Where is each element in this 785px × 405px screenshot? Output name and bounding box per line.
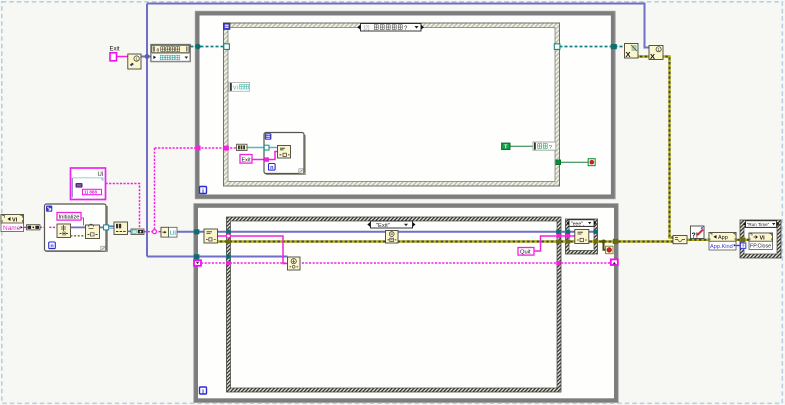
svg-text:1) 888: 1) 888 <box>84 190 97 195</box>
svg-text:Quit: Quit <box>520 250 531 256</box>
svg-text:i: i <box>202 188 204 195</box>
svg-text:App.Kind: App.Kind <box>710 244 733 250</box>
svg-text:UI: UI <box>98 172 104 178</box>
svg-text:VI: VI <box>12 218 18 224</box>
svg-text:?!: ?! <box>692 233 699 240</box>
svg-text:Initialize: Initialize <box>59 215 80 221</box>
svg-text:"Run Time": "Run Time" <box>747 222 770 227</box>
svg-text:[2]: [2] <box>364 26 370 32</box>
svg-text:VI: VI <box>233 86 238 92</box>
svg-text:Name: Name <box>3 225 21 232</box>
svg-text:?: ? <box>742 244 745 250</box>
svg-text:"eee",: "eee", <box>571 221 584 227</box>
svg-text:VI: VI <box>760 236 766 242</box>
svg-text:i: i <box>202 388 204 395</box>
svg-text:App: App <box>718 235 728 241</box>
svg-text:8: 8 <box>157 47 160 53</box>
svg-text:FP.Close: FP.Close <box>750 243 771 249</box>
svg-text:Exit: Exit <box>110 47 120 53</box>
svg-text:T: T <box>504 144 507 150</box>
svg-text:Exit: Exit <box>242 157 252 163</box>
svg-text:UI: UI <box>170 230 177 237</box>
svg-text:"Exit": "Exit" <box>376 223 390 229</box>
svg-text:X: X <box>626 50 631 59</box>
svg-text:X: X <box>650 52 655 61</box>
